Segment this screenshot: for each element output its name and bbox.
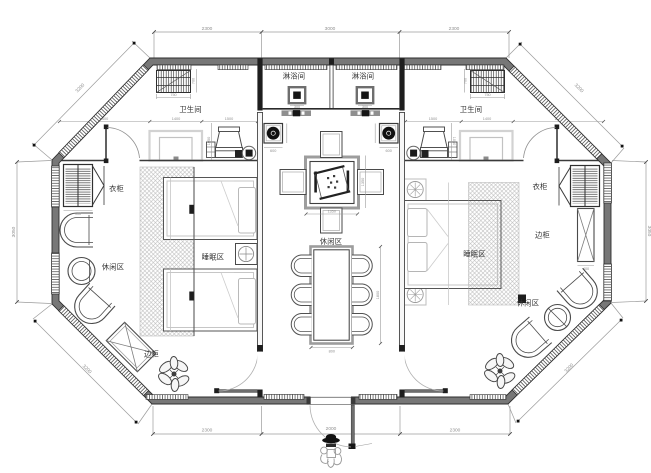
svg-text:休闲区: 休闲区 bbox=[102, 263, 125, 272]
svg-text:1050: 1050 bbox=[452, 137, 456, 145]
svg-text:750: 750 bbox=[484, 93, 490, 97]
svg-text:2300: 2300 bbox=[202, 26, 213, 32]
svg-text:3050: 3050 bbox=[646, 226, 651, 237]
svg-text:1400: 1400 bbox=[172, 117, 180, 121]
svg-text:600: 600 bbox=[386, 149, 392, 153]
svg-text:睡眠区: 睡眠区 bbox=[202, 253, 225, 262]
svg-text:衣柜: 衣柜 bbox=[109, 184, 124, 193]
svg-text:800: 800 bbox=[329, 350, 335, 354]
svg-text:900: 900 bbox=[75, 212, 81, 216]
svg-text:卫生间: 卫生间 bbox=[460, 105, 483, 114]
svg-text:睡眠区: 睡眠区 bbox=[463, 250, 486, 259]
svg-text:3000: 3000 bbox=[325, 26, 336, 32]
svg-text:休闲区: 休闲区 bbox=[320, 237, 343, 246]
svg-text:1350: 1350 bbox=[328, 210, 336, 214]
svg-text:衣柜: 衣柜 bbox=[533, 182, 548, 191]
svg-text:边柜: 边柜 bbox=[535, 231, 550, 240]
svg-text:休闲区: 休闲区 bbox=[517, 299, 540, 308]
svg-text:1350: 1350 bbox=[361, 178, 365, 186]
svg-text:1050: 1050 bbox=[207, 137, 211, 145]
svg-text:1500: 1500 bbox=[429, 117, 437, 121]
svg-text:2000: 2000 bbox=[326, 426, 337, 432]
svg-text:边柜: 边柜 bbox=[144, 350, 159, 359]
svg-text:2300: 2300 bbox=[202, 428, 213, 434]
svg-text:700: 700 bbox=[464, 78, 468, 84]
svg-text:卫生间: 卫生间 bbox=[179, 105, 202, 114]
svg-text:2300: 2300 bbox=[449, 26, 460, 32]
svg-text:700: 700 bbox=[192, 78, 196, 84]
svg-text:750: 750 bbox=[170, 93, 176, 97]
svg-text:淋浴间: 淋浴间 bbox=[283, 72, 306, 81]
svg-text:600: 600 bbox=[270, 149, 276, 153]
svg-text:淋浴间: 淋浴间 bbox=[352, 72, 375, 81]
svg-text:1500: 1500 bbox=[225, 117, 233, 121]
svg-text:3050: 3050 bbox=[11, 226, 17, 237]
svg-text:1800: 1800 bbox=[376, 291, 380, 299]
svg-text:1400: 1400 bbox=[483, 117, 491, 121]
svg-text:2300: 2300 bbox=[450, 428, 461, 434]
